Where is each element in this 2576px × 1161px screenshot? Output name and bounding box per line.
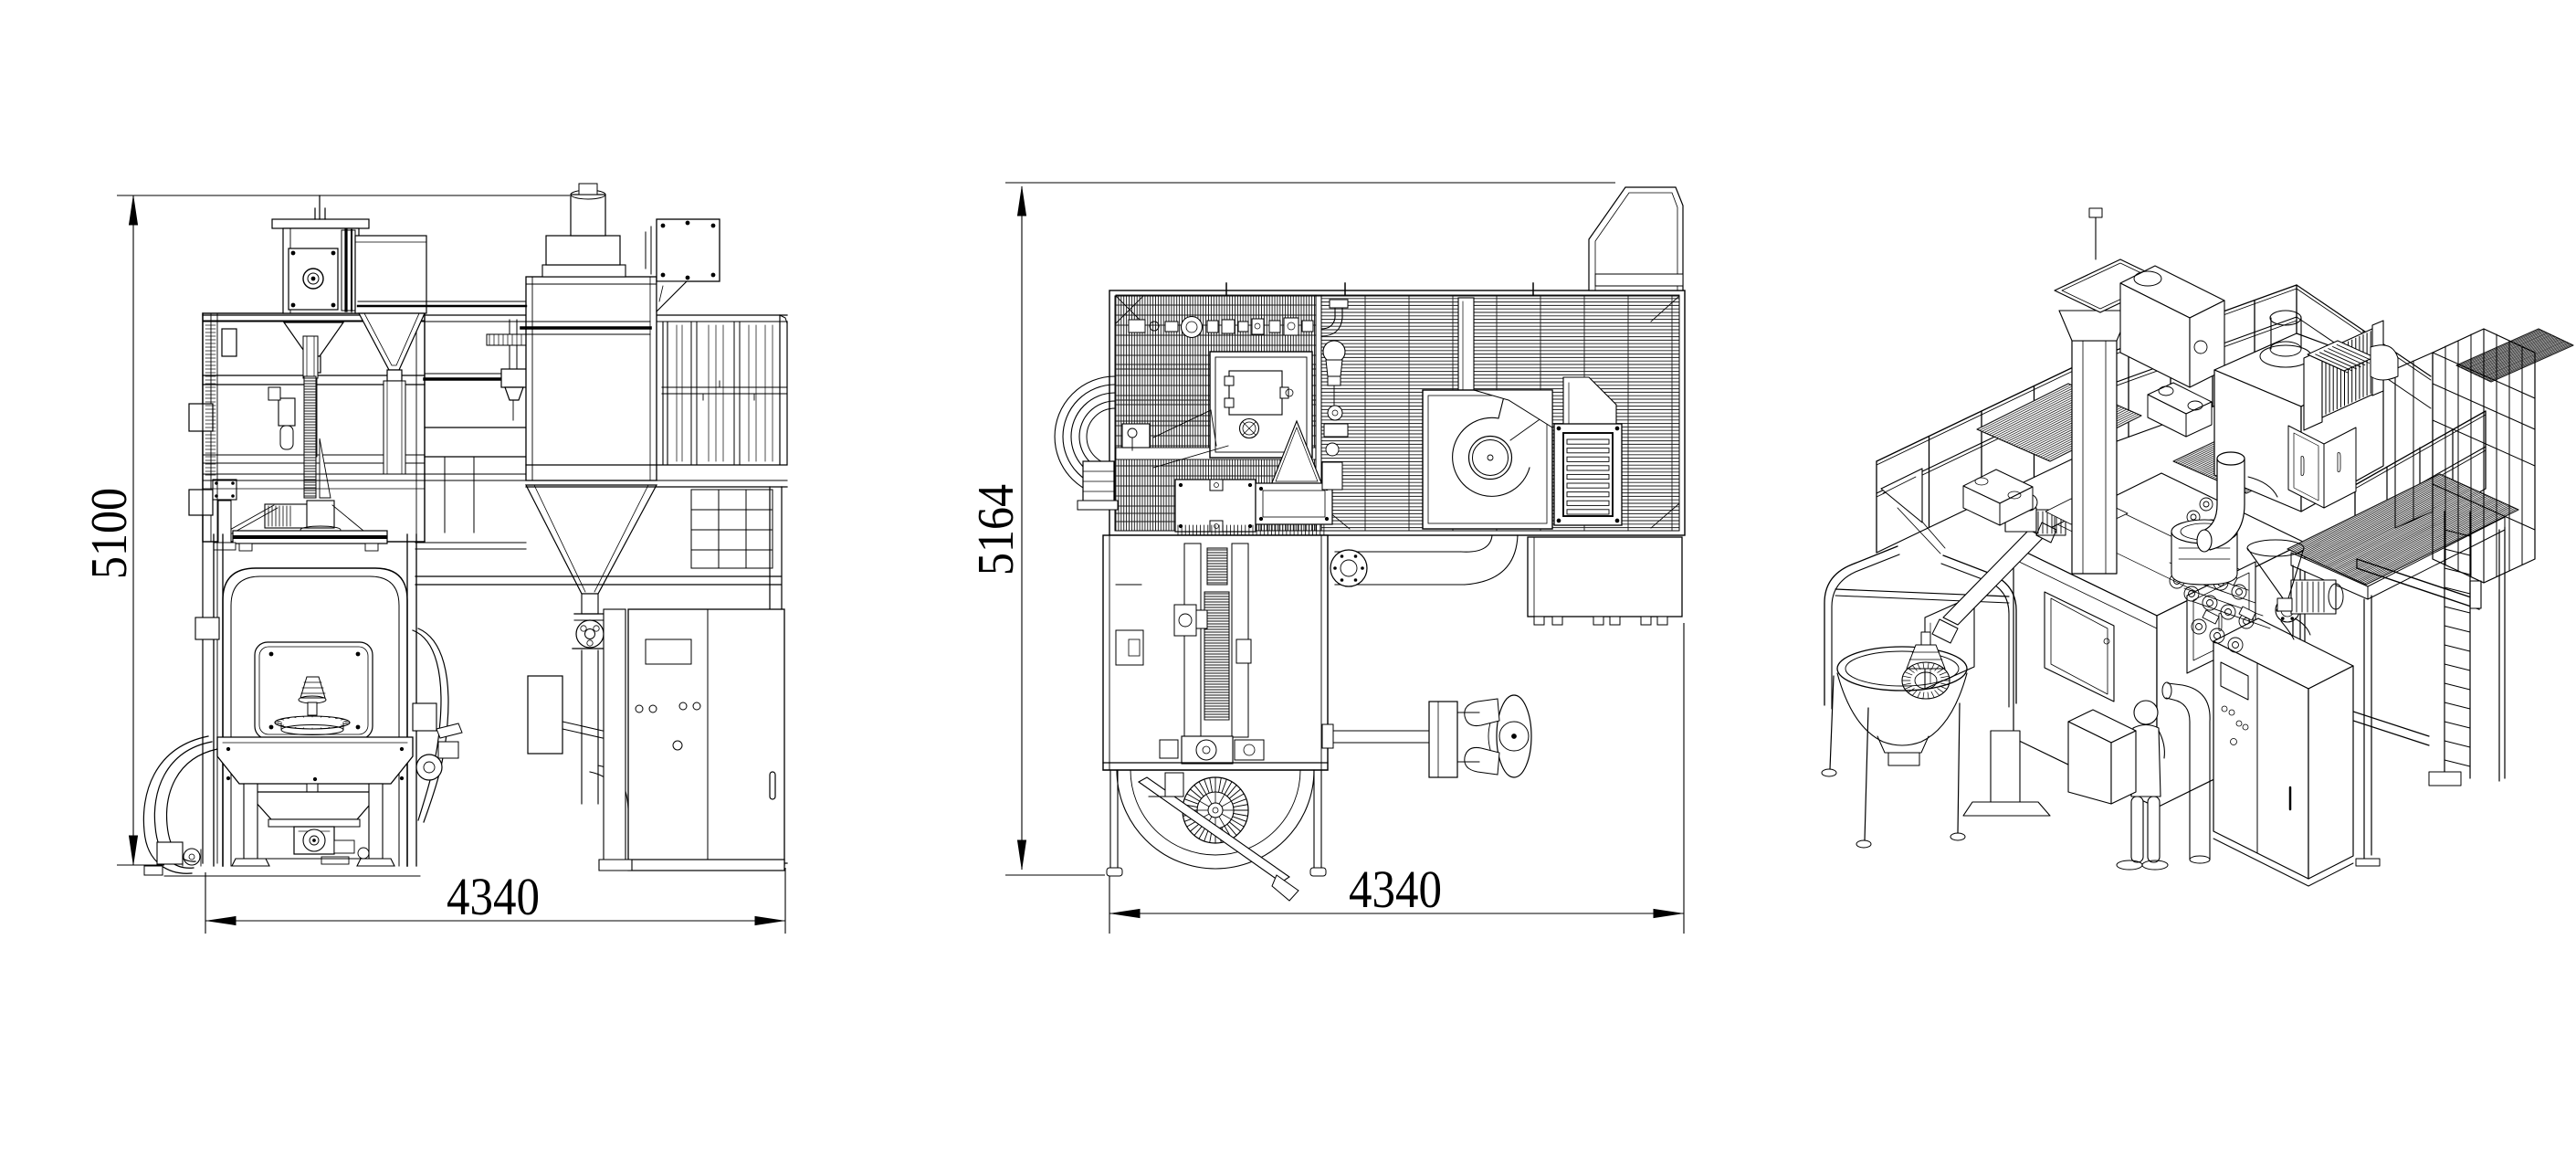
svg-text:5164: 5164 xyxy=(968,484,1025,575)
svg-text:4340: 4340 xyxy=(447,867,540,926)
svg-text:5100: 5100 xyxy=(81,488,138,579)
svg-text:4340: 4340 xyxy=(1349,860,1442,919)
